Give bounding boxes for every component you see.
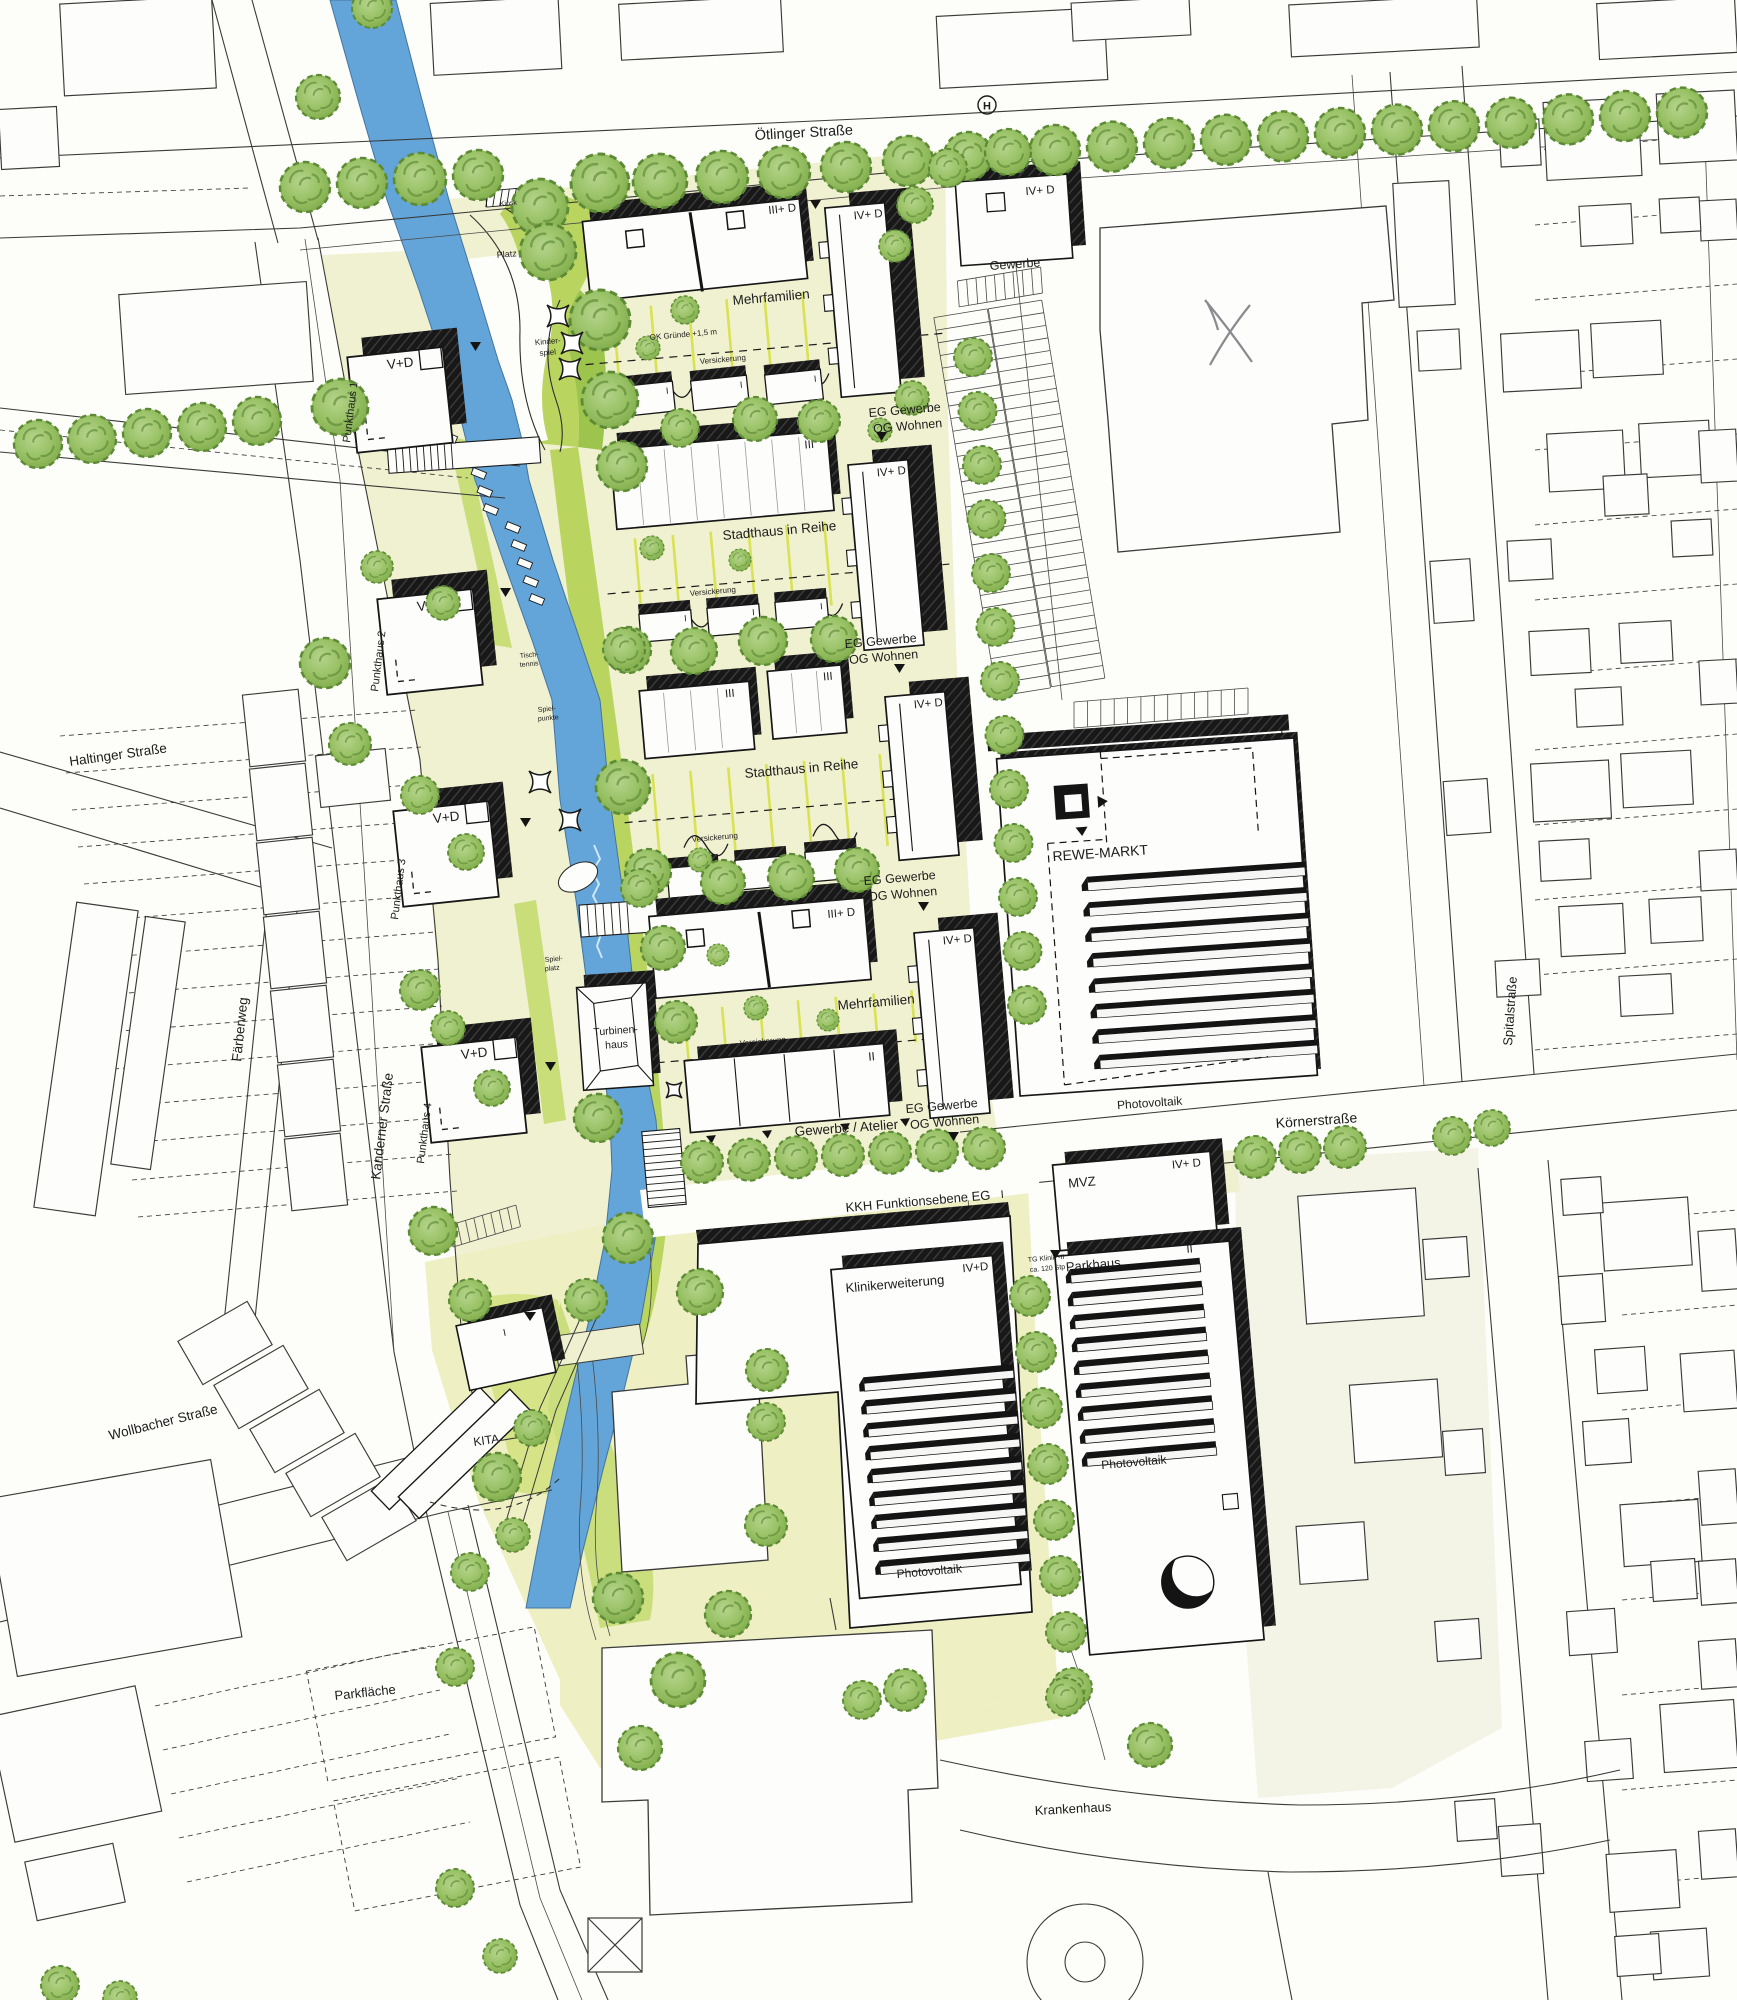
svg-text:spiel: spiel [539,347,556,357]
svg-text:III: III [823,671,834,684]
svg-text:haus: haus [605,1038,629,1052]
svg-text:III: III [725,688,736,701]
svg-text:V+D: V+D [460,1044,488,1062]
svg-text:V+D: V+D [386,354,414,372]
svg-text:IV+ D: IV+ D [1171,1157,1201,1171]
svg-text:IV+ D: IV+ D [913,697,943,711]
svg-text:IV+D: IV+D [962,1261,989,1275]
svg-text:MVZ: MVZ [1068,1173,1097,1190]
svg-text:platz: platz [545,965,561,973]
svg-text:H: H [983,101,991,113]
svg-text:III+ D: III+ D [827,907,856,921]
svg-text:II: II [868,1049,876,1064]
svg-text:IV+ D: IV+ D [1025,184,1055,198]
svg-text:IV+ D: IV+ D [876,465,906,479]
svg-text:Platz: Platz [496,248,517,260]
svg-text:II: II [1186,1243,1193,1256]
svg-text:IV+ D: IV+ D [853,208,883,222]
svg-text:IV+ D: IV+ D [942,933,972,947]
svg-text:V+D: V+D [432,808,460,826]
